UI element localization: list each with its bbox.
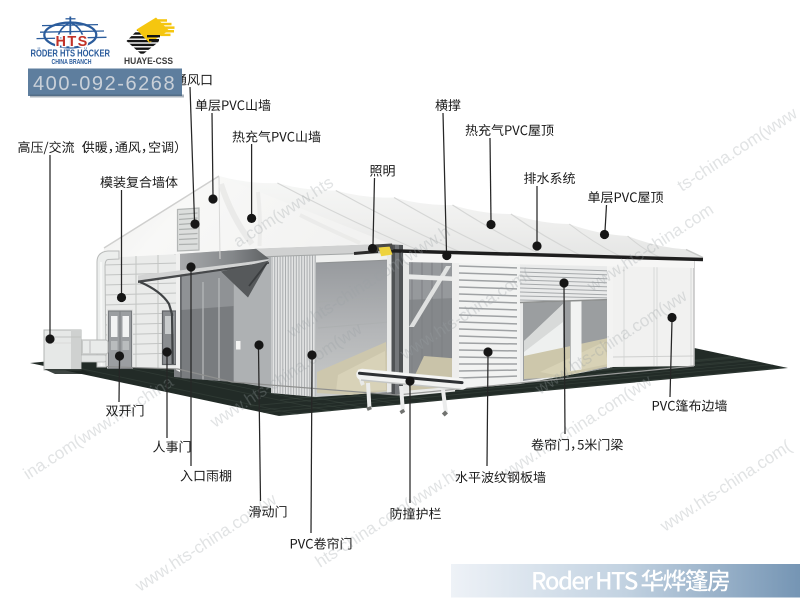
svg-text:HUAYE-CSS: HUAYE-CSS xyxy=(124,56,173,67)
svg-text:CHINA BRANCH: CHINA BRANCH xyxy=(52,59,92,66)
svg-text:RÖDER HTS HÖCKER: RÖDER HTS HÖCKER xyxy=(31,47,111,60)
svg-text:400-092-6268: 400-092-6268 xyxy=(33,73,176,95)
